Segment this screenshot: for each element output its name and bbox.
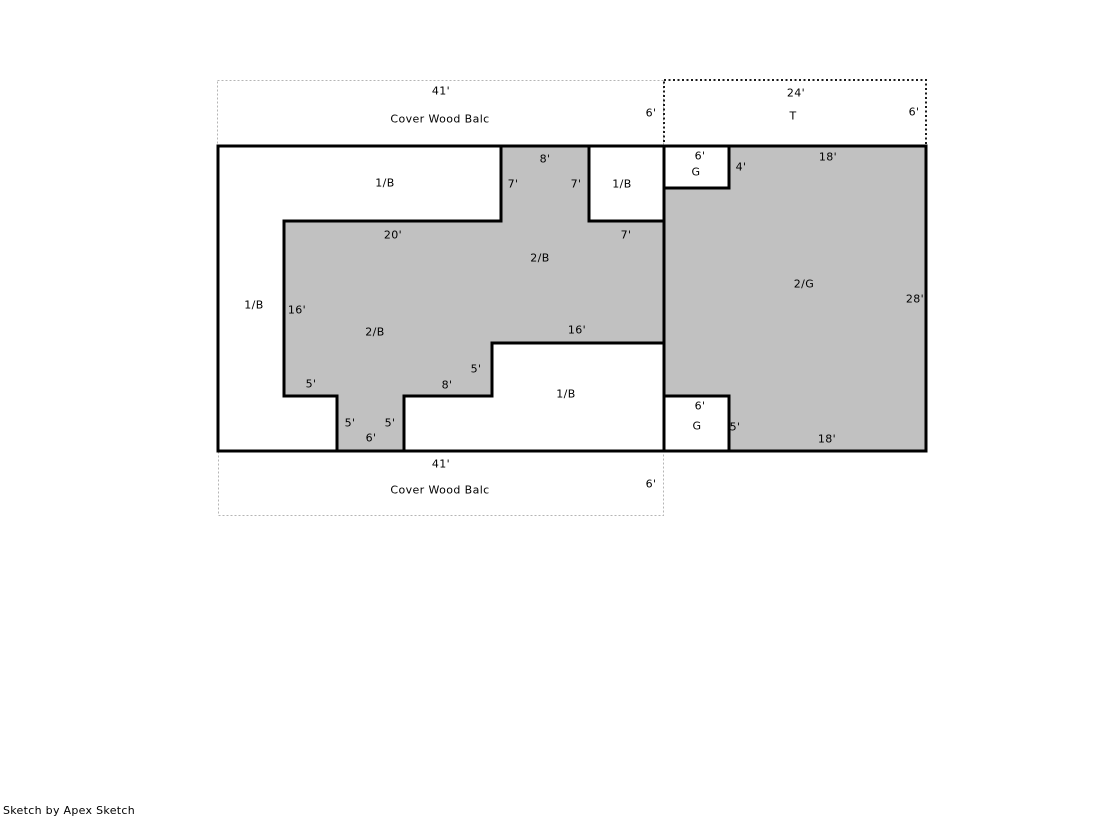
- top-balcony-outline: [218, 81, 664, 147]
- terrace-outline: [664, 80, 926, 146]
- floor-plan-sketch: [0, 0, 1119, 821]
- garage-top-cutout: [664, 146, 729, 188]
- sketch-page: 41'Cover Wood Balc6'24'T6'8'1/B7'7'1/B6'…: [0, 0, 1119, 821]
- garage-bottom-cutout: [664, 396, 729, 451]
- credit-text: Sketch by Apex Sketch: [3, 804, 135, 817]
- bottom-balcony-outline: [219, 452, 664, 516]
